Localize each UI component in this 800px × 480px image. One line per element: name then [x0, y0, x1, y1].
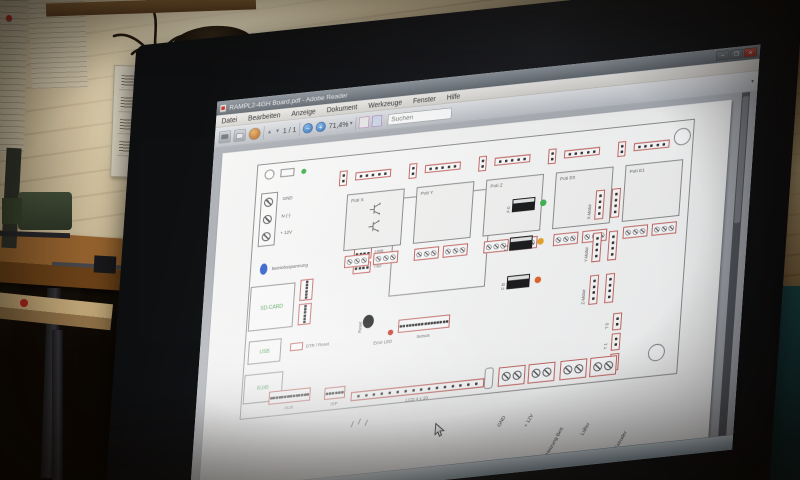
- pin-header: [355, 169, 391, 181]
- pin-dot: [388, 391, 391, 394]
- pin-dot: [396, 390, 399, 393]
- terminal-label: + 12V: [523, 413, 535, 428]
- screw: [584, 234, 590, 240]
- pin-dot: [481, 160, 484, 163]
- pin-dot: [384, 172, 387, 175]
- pin-header: [339, 170, 348, 186]
- mouse-cursor: [434, 421, 446, 437]
- motor-header: [604, 273, 615, 303]
- pin-dot: [611, 247, 614, 250]
- motor-header: [607, 230, 618, 260]
- screw: [661, 225, 667, 231]
- page-up-button[interactable]: ▲: [267, 129, 272, 135]
- screw-terminal: [589, 355, 617, 377]
- thermo-header-label: T 1: [603, 343, 608, 350]
- pin-dot: [404, 390, 407, 393]
- pin-dot: [305, 296, 308, 299]
- pin-dot: [638, 145, 641, 148]
- pin-dot: [592, 297, 595, 300]
- fuse-block: [506, 274, 530, 290]
- pin-dot: [611, 253, 614, 256]
- pin-dot: [616, 317, 619, 320]
- screw-terminal: [498, 365, 526, 387]
- page-view-icon[interactable]: [359, 116, 370, 128]
- transistor-symbol: [367, 219, 383, 234]
- pin-dot: [303, 320, 306, 323]
- motor-header: [591, 232, 602, 262]
- screw-terminal: [527, 362, 555, 384]
- pin-dot: [598, 206, 601, 209]
- screw: [383, 255, 389, 261]
- wall-paper-strip: [0, 0, 28, 152]
- pin-header: [298, 303, 312, 326]
- thermo-header: [612, 312, 622, 330]
- screw: [593, 362, 603, 372]
- motor-header-label: Z-Motor: [580, 289, 586, 305]
- pin-dot: [307, 393, 310, 396]
- pin-dot: [608, 284, 611, 287]
- pin-dot: [614, 211, 617, 214]
- zoom-out-button[interactable]: −: [303, 122, 314, 133]
- toolbar-overflow-button[interactable]: ▾: [751, 78, 754, 85]
- pin-dot: [595, 255, 598, 258]
- sd-card-slot: SD-CARD: [248, 282, 296, 331]
- pin-dot: [614, 199, 617, 202]
- pin-dot: [593, 150, 596, 153]
- pin-dot: [341, 391, 344, 394]
- screw: [423, 250, 429, 256]
- red-pushpin: [6, 15, 12, 21]
- pin-dot: [366, 174, 369, 177]
- pin-dot: [609, 278, 612, 281]
- pin-dot: [612, 235, 615, 238]
- pin-dot: [575, 152, 578, 155]
- power-pin-label: N (-): [281, 213, 290, 219]
- fuse-led: [540, 199, 547, 206]
- search-input[interactable]: [387, 107, 451, 125]
- search-box[interactable]: [387, 107, 451, 125]
- pin-dot: [467, 383, 470, 386]
- pin-dot: [599, 200, 602, 203]
- screw: [574, 364, 584, 374]
- servo-header: [398, 314, 451, 333]
- screen: RAMPL2-4GH Board.pdf - Adobe Reader – ❐ …: [189, 44, 760, 480]
- pin-dot: [644, 145, 647, 148]
- pin-header: [478, 156, 487, 172]
- driver-socket: Poti E1: [622, 159, 684, 222]
- document-area: GND N (-) + 12V Betriebsspannung SD-CARD: [190, 91, 757, 480]
- screw: [542, 367, 552, 377]
- fuse-block: [512, 197, 536, 213]
- pin-dot: [499, 160, 502, 163]
- pin-dot: [614, 343, 617, 346]
- screw: [563, 365, 573, 375]
- dtr-reset-label: DTR / Reset: [306, 341, 330, 349]
- usb-port: USB: [247, 338, 281, 365]
- menu-item-hilfe[interactable]: Hilfe: [441, 92, 466, 102]
- pin-dot: [412, 167, 415, 170]
- pin-dot: [593, 279, 596, 282]
- board-hole: [673, 127, 691, 146]
- power-connector: [258, 192, 279, 247]
- silkscreen-mark: [365, 420, 368, 426]
- pin-dot: [428, 387, 431, 390]
- collaborate-icon[interactable]: [248, 127, 261, 140]
- pin-header: [633, 139, 669, 151]
- minimize-button[interactable]: –: [716, 50, 730, 60]
- pin-dot: [451, 385, 454, 388]
- pin-header: [617, 141, 626, 157]
- pdf-page: GND N (-) + 12V Betriebsspannung SD-CARD: [199, 100, 732, 480]
- terminal-label: Lüfter: [580, 422, 591, 436]
- pin-header: [564, 147, 600, 159]
- fuse-label: F 1: [503, 245, 508, 252]
- screw: [668, 225, 674, 231]
- isp-header: [324, 386, 346, 400]
- pin-dot: [587, 151, 590, 154]
- board-hole: [264, 169, 275, 180]
- screw: [570, 235, 576, 241]
- screw: [354, 258, 360, 264]
- clamp-block: [94, 255, 117, 273]
- dtr-reset-header: [290, 342, 303, 351]
- pin-dot: [598, 212, 601, 215]
- pin-header: [299, 278, 313, 301]
- board-hole: [647, 343, 665, 362]
- driver-label: Poti E1: [629, 167, 645, 174]
- pin-dot: [517, 158, 520, 161]
- screw: [445, 248, 451, 254]
- pin-dot: [459, 384, 462, 387]
- pin-dot: [608, 290, 611, 293]
- error-led: [388, 329, 394, 335]
- screw: [459, 247, 465, 253]
- driver-socket: Poti Y: [413, 181, 475, 244]
- pin-dot: [378, 173, 381, 176]
- screw: [654, 226, 660, 232]
- power-led: [260, 263, 268, 275]
- pin-header: [425, 161, 461, 173]
- pin-dot: [412, 389, 415, 392]
- pin-header: [408, 163, 417, 179]
- pin-dot: [656, 143, 659, 146]
- jumper-block: [280, 168, 294, 178]
- driver-terminal: [622, 224, 648, 239]
- pin-dot: [551, 158, 554, 161]
- error-led-label: Error LED: [373, 339, 392, 346]
- reset-label: Reset: [357, 321, 363, 333]
- screw: [416, 251, 422, 257]
- pin-dot: [429, 167, 432, 170]
- screw: [390, 254, 396, 260]
- fuse-led: [537, 238, 544, 245]
- bench-vise: [0, 148, 92, 260]
- fuse-led: [534, 276, 541, 283]
- pcb-diagram: GND N (-) + 12V Betriebsspannung SD-CARD: [240, 119, 695, 420]
- screw: [556, 237, 562, 243]
- silkscreen-mark: [351, 421, 354, 427]
- motor-header: [588, 275, 599, 305]
- workshop-photo: RAMPL2-4GH Board.pdf - Adobe Reader – ❐ …: [0, 0, 800, 480]
- pin-dot: [620, 150, 623, 153]
- pin-dot: [373, 393, 376, 396]
- screw: [431, 250, 437, 256]
- pin-dot: [342, 174, 345, 177]
- pin-dot: [616, 323, 619, 326]
- pin-dot: [420, 388, 423, 391]
- fuse-label: F 0: [506, 206, 511, 213]
- menu-item-datei[interactable]: Datei: [216, 115, 243, 125]
- driver-terminal: [553, 232, 579, 247]
- silkscreen-mark: [358, 418, 361, 424]
- pin-dot: [611, 241, 614, 244]
- isp-label: ISP: [323, 400, 344, 407]
- pin-dot: [662, 143, 665, 146]
- thermo-header: [611, 333, 621, 351]
- zoom-in-button[interactable]: +: [315, 121, 326, 132]
- screw: [639, 228, 645, 234]
- email-icon[interactable]: [233, 128, 246, 141]
- motor-header-label: Y-Motor: [583, 247, 589, 262]
- screw: [632, 229, 638, 235]
- thermo-header-label: T 0: [604, 323, 609, 330]
- screw: [625, 229, 631, 235]
- pin-dot: [581, 151, 584, 154]
- screw: [452, 247, 458, 253]
- pin-dot: [481, 165, 484, 168]
- pin-dot: [381, 392, 384, 395]
- fuse-holder: [484, 367, 494, 389]
- pin-dot: [448, 165, 451, 168]
- page-down-button[interactable]: ▼: [275, 128, 280, 134]
- pin-dot: [523, 157, 526, 160]
- pin-dot: [596, 243, 599, 246]
- screw: [347, 259, 353, 265]
- screw: [361, 257, 367, 263]
- pin-dot: [650, 144, 653, 147]
- pin-dot: [444, 385, 447, 388]
- adobe-reader-icon: [220, 104, 227, 112]
- plywood-table-leg: [52, 330, 63, 480]
- pin-dot: [435, 167, 438, 170]
- pin-dot: [511, 159, 514, 162]
- reset-button: [362, 314, 374, 328]
- pin-dot: [475, 382, 478, 385]
- status-led: [301, 169, 306, 175]
- screw: [563, 236, 569, 242]
- pin-dot: [614, 205, 617, 208]
- pin-dot: [593, 285, 596, 288]
- pin-header: [494, 154, 530, 166]
- pin-dot: [505, 159, 508, 162]
- pin-dot: [596, 237, 599, 240]
- screw: [531, 368, 541, 378]
- pin-dot: [615, 193, 618, 196]
- maximize-button[interactable]: ❐: [730, 49, 744, 59]
- pin-dot: [372, 173, 375, 176]
- screw: [493, 243, 499, 249]
- pin-header: [548, 148, 557, 164]
- zoom-level-select[interactable]: 71,4%▾: [328, 119, 352, 130]
- pin-dot: [621, 145, 624, 148]
- screw-terminal: [559, 358, 587, 380]
- driver-label: Poti Z: [490, 182, 503, 189]
- monitor: RAMPL2-4GH Board.pdf - Adobe Reader – ❐ …: [99, 0, 800, 480]
- pin-dot: [599, 194, 602, 197]
- pin-dot: [365, 394, 368, 397]
- pin-dot: [595, 249, 598, 252]
- pin-dot: [454, 165, 457, 168]
- screw: [486, 244, 492, 250]
- motor-header: [610, 188, 621, 218]
- menu-item-fenster[interactable]: Fenster: [407, 94, 441, 105]
- screw: [501, 371, 511, 381]
- page-indicator: 1 / 1: [283, 125, 297, 135]
- power-pin-label: + 12V: [280, 229, 292, 235]
- power-pin-label: GND: [282, 195, 292, 201]
- close-button[interactable]: ✕: [744, 47, 758, 57]
- pin-dot: [551, 152, 554, 155]
- pin-dot: [411, 172, 414, 175]
- screw: [512, 370, 522, 380]
- driver-label: Poti X: [351, 197, 364, 204]
- power-led-label: Betriebsspannung: [272, 262, 308, 271]
- transistor-symbol: [368, 202, 384, 217]
- driver-label: Poti Y: [421, 189, 434, 196]
- pin-dot: [342, 180, 345, 183]
- pin-dot: [615, 337, 618, 340]
- pin-dot: [569, 153, 572, 156]
- terminal-label: GND: [496, 415, 507, 428]
- pin-dot: [608, 296, 611, 299]
- pin-dot: [357, 395, 360, 398]
- pin-dot: [592, 291, 595, 294]
- scroll-view-icon[interactable]: [372, 115, 383, 127]
- fuse-block: [509, 235, 533, 251]
- pin-dot: [436, 386, 439, 389]
- driver-terminal: [651, 221, 677, 236]
- driver-label: Poti E0: [560, 175, 576, 182]
- print-icon[interactable]: [218, 130, 231, 143]
- red-knob: [20, 299, 28, 307]
- pin-dot: [441, 166, 444, 169]
- fuse-label: F B: [500, 283, 505, 290]
- screw: [604, 361, 614, 371]
- screw: [376, 256, 382, 262]
- pin-dot: [446, 320, 449, 323]
- pin-dot: [360, 175, 363, 178]
